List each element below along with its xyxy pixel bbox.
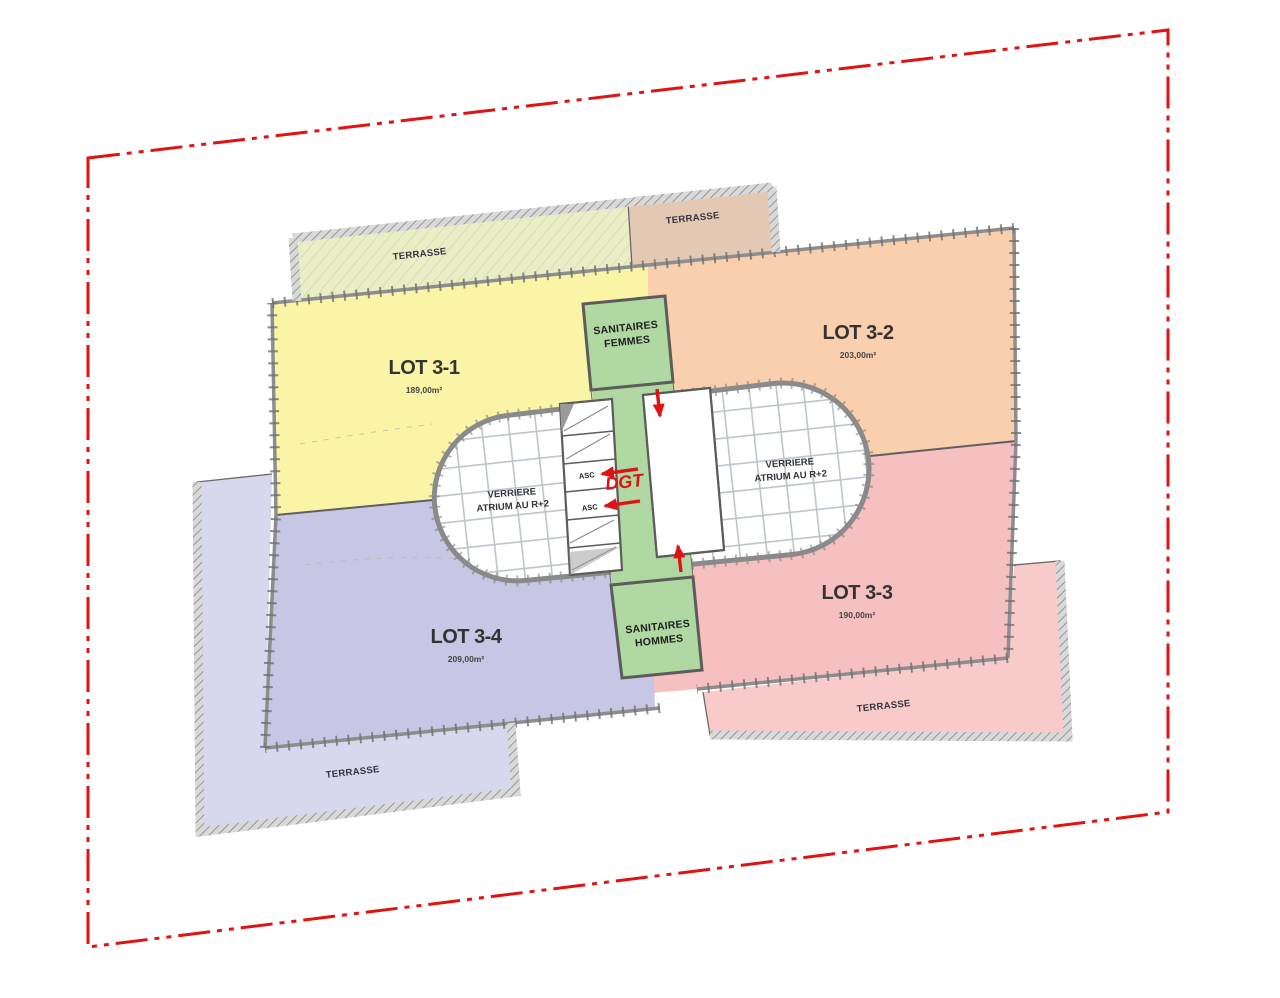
- lot-3-4-label: LOT 3-4: [431, 626, 503, 648]
- lot-3-3-label: LOT 3-3: [822, 582, 893, 604]
- lot-3-2-label: LOT 3-2: [823, 322, 894, 344]
- lot-3-2-area: 203,00m²: [840, 350, 877, 360]
- lot-3-3-area: 190,00m²: [839, 610, 876, 620]
- elevator-asc-label-2: ASC: [581, 502, 598, 513]
- elevator-asc-label-1: ASC: [578, 470, 595, 481]
- lot-3-1-label: LOT 3-1: [389, 357, 460, 379]
- floor-plan-drawing: LOT 3-1 189,00m² LOT 3-2 203,00m² LOT 3-…: [0, 0, 1280, 998]
- lot-3-1-area: 189,00m²: [406, 385, 443, 395]
- staircase-outline: [643, 388, 724, 557]
- lot-3-4-area: 209,00m²: [448, 654, 485, 664]
- floor-plan-page: LOT 3-1 189,00m² LOT 3-2 203,00m² LOT 3-…: [0, 0, 1280, 998]
